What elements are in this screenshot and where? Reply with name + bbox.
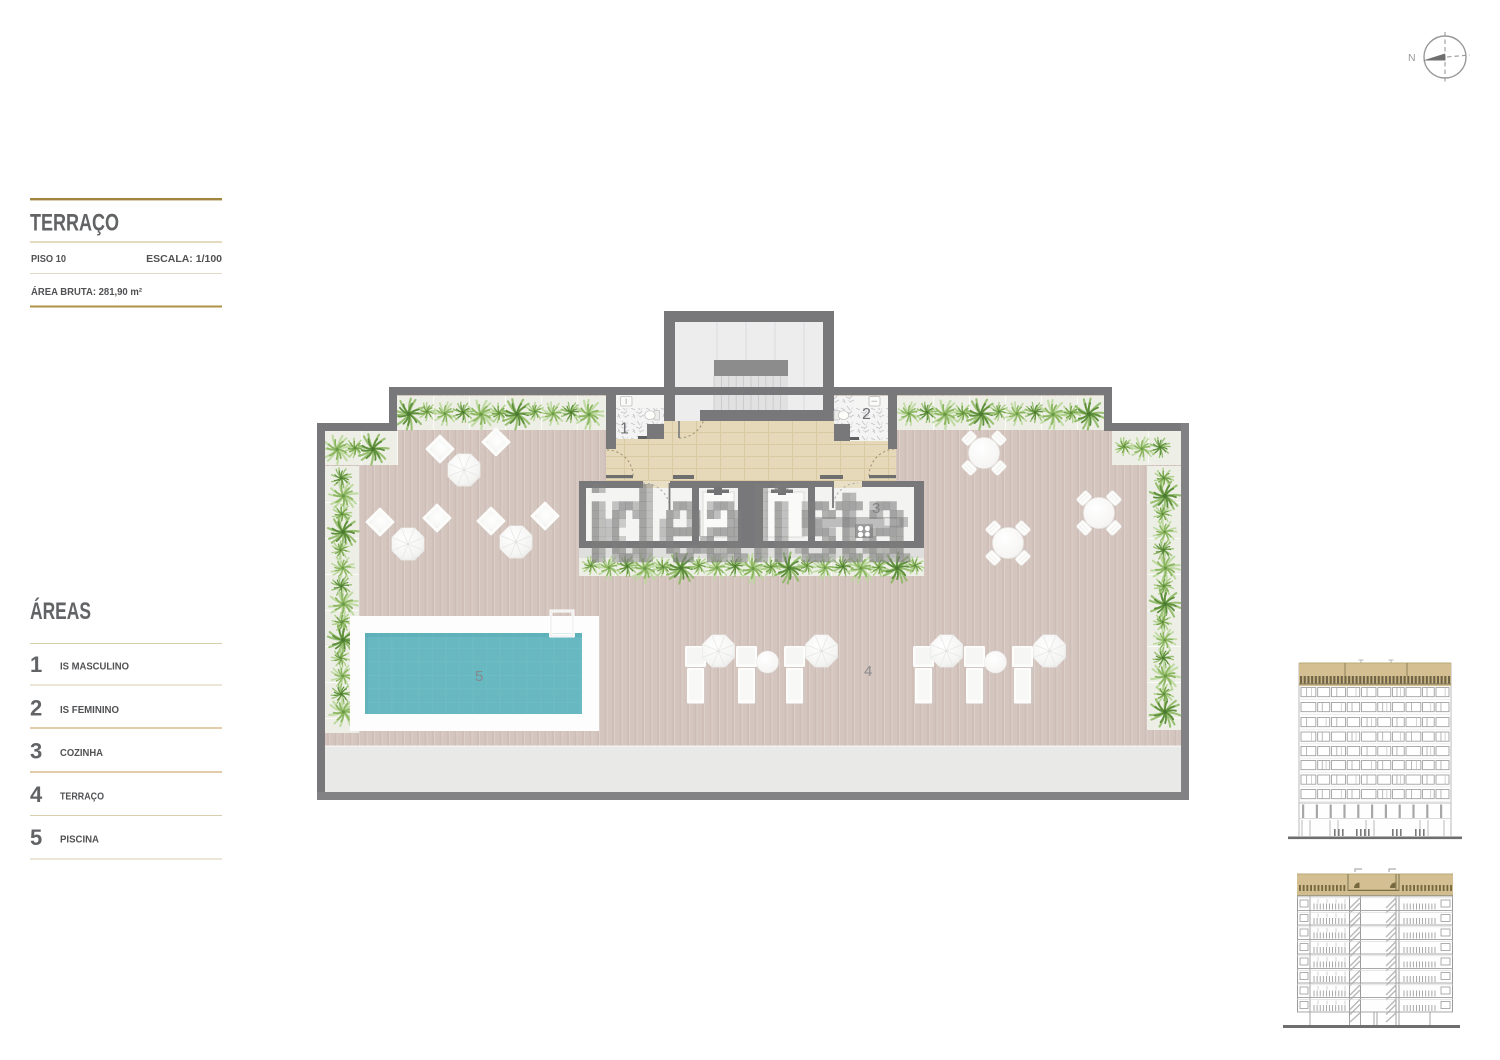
svg-text:IS MASCULINO: IS MASCULINO [60,661,129,673]
svg-text:1: 1 [30,652,42,677]
svg-text:5: 5 [30,825,42,850]
svg-text:TERRAÇO: TERRAÇO [30,210,119,237]
svg-text:5: 5 [475,668,483,685]
svg-text:ESCALA: 1/100: ESCALA: 1/100 [146,253,222,265]
svg-text:4: 4 [30,782,43,807]
svg-text:3: 3 [30,739,42,764]
svg-text:1: 1 [620,421,629,438]
svg-text:IS FEMININO: IS FEMININO [60,704,119,716]
svg-text:2: 2 [30,696,42,721]
svg-text:TERRAÇO: TERRAÇO [60,791,104,803]
svg-text:4: 4 [864,663,872,680]
svg-text:PISO 10: PISO 10 [31,253,66,265]
svg-text:2: 2 [862,406,871,423]
svg-text:COZINHA: COZINHA [60,747,103,759]
svg-text:ÁREA BRUTA: 281,90 m²: ÁREA BRUTA: 281,90 m² [31,285,142,298]
svg-text:PISCINA: PISCINA [60,834,99,846]
svg-text:ÁREAS: ÁREAS [30,597,91,625]
svg-text:N: N [1408,52,1416,64]
